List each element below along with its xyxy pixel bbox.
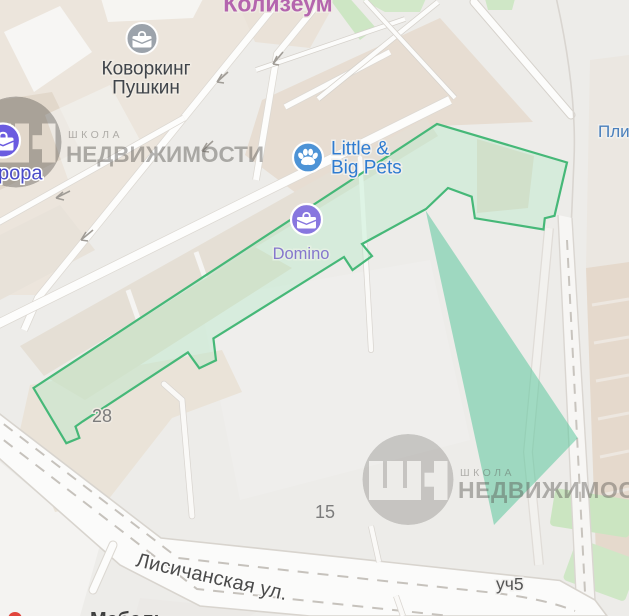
svg-text:Мебель: Мебель — [90, 609, 166, 616]
svg-text:уч5: уч5 — [496, 574, 524, 594]
svg-text:Domino: Domino — [273, 245, 330, 263]
svg-text:НЕДВИЖИМОС: НЕДВИЖИМОС — [458, 477, 629, 503]
svg-text:НЕДВИЖИМОСТИ: НЕДВИЖИМОСТИ — [66, 142, 264, 167]
svg-text:Плит: Плит — [598, 122, 629, 141]
svg-text:15: 15 — [315, 502, 335, 522]
svg-text:ШКОЛА: ШКОЛА — [68, 129, 123, 141]
svg-text:Big Pets: Big Pets — [331, 158, 402, 179]
svg-text:28: 28 — [92, 406, 112, 426]
svg-text:Коворкинг: Коворкинг — [102, 59, 191, 80]
svg-text:Пушкин: Пушкин — [112, 78, 180, 99]
svg-text:Little &: Little & — [331, 139, 389, 160]
svg-text:Колизеум: Колизеум — [223, 0, 332, 17]
svg-text:рора: рора — [0, 163, 43, 185]
